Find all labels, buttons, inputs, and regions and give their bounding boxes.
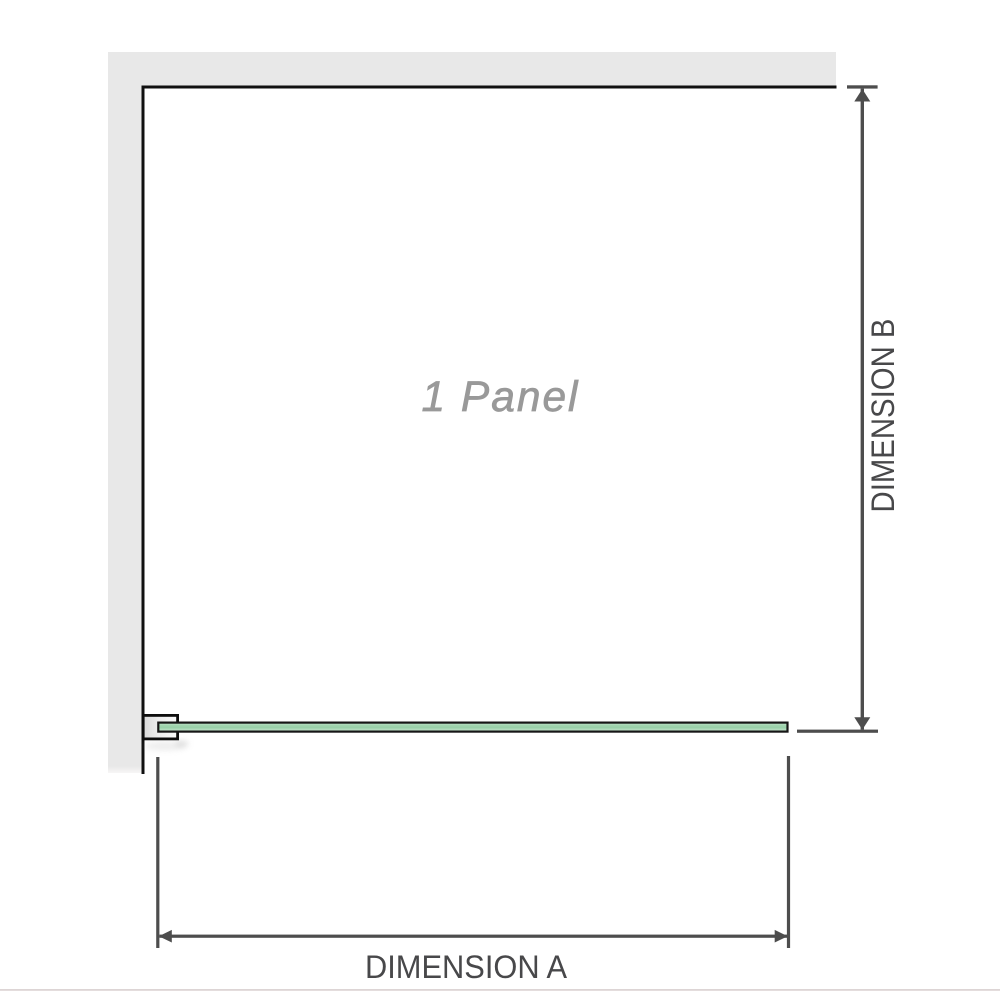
svg-text:DIMENSION A: DIMENSION A: [365, 949, 568, 985]
svg-text:1 Panel: 1 Panel: [422, 374, 580, 421]
svg-text:DIMENSION B: DIMENSION B: [865, 319, 901, 513]
